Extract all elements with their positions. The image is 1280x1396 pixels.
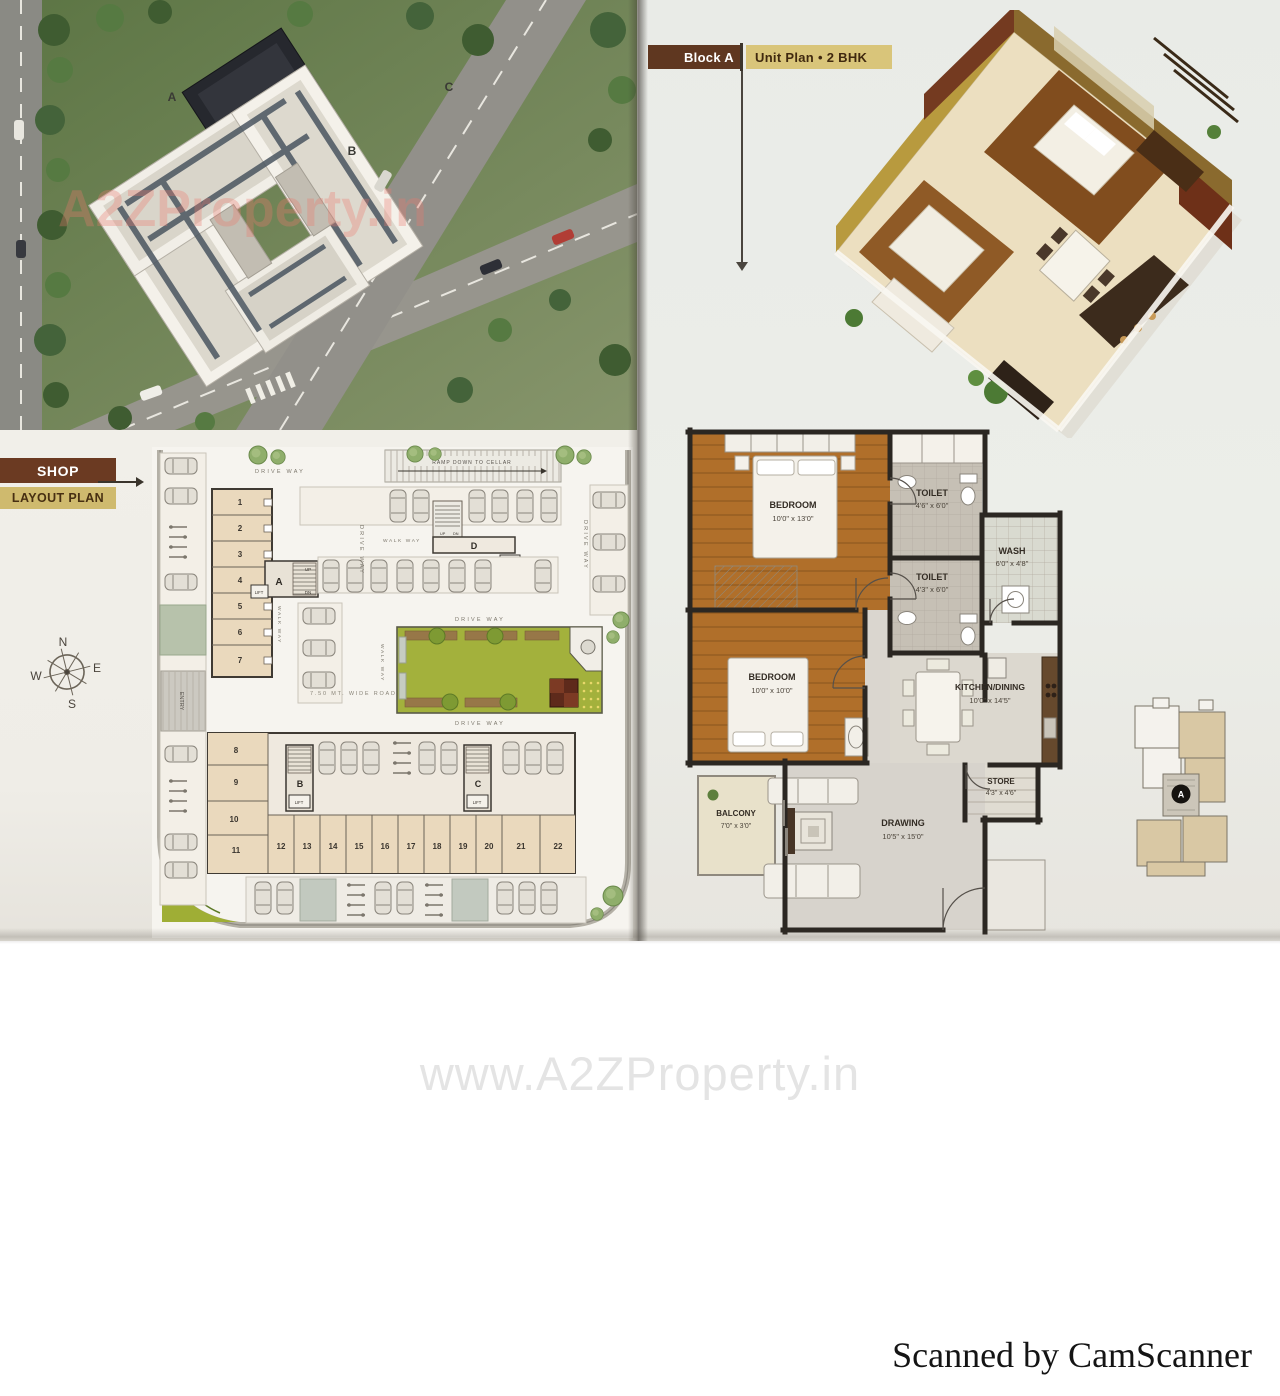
compass-w: W <box>30 669 42 683</box>
entrance-foyer <box>987 860 1045 930</box>
pointer-arrowhead-icon <box>736 262 748 271</box>
balcony-dims: 7'0" x 3'0" <box>721 823 752 830</box>
bedroom1-dims: 10'0" x 13'0" <box>772 514 813 523</box>
shop-19: 19 <box>459 842 468 851</box>
ramp-label: RAMP DOWN TO CELLAR <box>432 460 512 466</box>
layout-plan-label: LAYOUT PLAN <box>12 491 104 505</box>
shop-2: 2 <box>238 524 243 533</box>
drive-way-garden-top: DRIVE WAY <box>455 617 505 623</box>
block-c-lift: LIFT <box>473 800 482 805</box>
shop-21: 21 <box>517 842 526 851</box>
compass-n: N <box>59 635 68 649</box>
shop-22: 22 <box>554 842 563 851</box>
entry-ramp: ENTRY <box>161 671 205 731</box>
compass-rose: N E W S <box>25 630 109 714</box>
tv-unit <box>787 808 795 854</box>
block-a-dn: DN <box>305 590 312 595</box>
bedroom2-label: BEDROOM <box>749 672 796 682</box>
compass-e: E <box>93 661 101 675</box>
scanned-brochure-page: A B C A2ZProperty.in Block A Unit Plan •… <box>0 0 1280 1396</box>
shop-12: 12 <box>277 842 286 851</box>
toilet2-dims: 4'3" x 6'0" <box>916 585 949 594</box>
bedroom1-label: BEDROOM <box>770 500 817 510</box>
block-c-label: C <box>475 779 482 789</box>
central-garden <box>397 627 602 713</box>
shop-13: 13 <box>303 842 312 851</box>
shop-10: 10 <box>230 815 239 824</box>
block-b-lift: LIFT <box>295 800 304 805</box>
shop-15: 15 <box>355 842 364 851</box>
shop-1: 1 <box>238 498 243 507</box>
key-plan: A <box>1113 690 1247 882</box>
walk-way-vertical-2: WALK WAY <box>379 644 385 682</box>
shop-5: 5 <box>238 602 243 611</box>
south-shops-slab: 8 9 10 11 12 13 14 15 16 17 18 19 20 21 … <box>208 733 575 873</box>
scan-edge-shadow <box>0 928 1280 944</box>
compass-s: S <box>68 697 76 711</box>
balcony-label: BALCONY <box>716 809 756 818</box>
walk-way-vertical-1: WALK WAY <box>276 606 282 644</box>
block-a-header: Block A <box>648 45 741 69</box>
shop-4: 4 <box>238 576 243 585</box>
shop-18: 18 <box>433 842 442 851</box>
drawing-label: DRAWING <box>881 818 925 828</box>
block-d-dn: DN <box>453 532 459 536</box>
pointer-line <box>741 71 743 263</box>
block-a-up: UP <box>305 567 311 572</box>
building-label-a: A <box>168 90 177 104</box>
key-plan-block-label: A <box>1178 790 1185 800</box>
drive-way-inner: DRIVE WAY <box>358 525 364 575</box>
store-dims: 4'3" x 4'6" <box>986 790 1017 797</box>
building-label-b: B <box>348 144 357 158</box>
toilet2-label: TOILET <box>916 572 948 582</box>
sofa-top <box>768 778 858 804</box>
wide-road-label: 7.50 MT. WIDE ROAD <box>310 691 397 697</box>
site-watermark: www.A2ZProperty.in <box>0 1046 1280 1101</box>
drive-way-east: DRIVE WAY <box>582 520 588 570</box>
building-label-c: C <box>445 80 454 94</box>
block-d-label: D <box>471 541 478 551</box>
shop-16: 16 <box>381 842 390 851</box>
page-fold-shadow <box>628 0 648 941</box>
kitchen-dims: 10'0" x 14'5" <box>969 696 1010 705</box>
dining-table <box>916 672 960 742</box>
shop-layout-plan: ENTRY 1 2 3 4 5 6 7 <box>150 445 635 940</box>
store-label: STORE <box>987 777 1015 786</box>
toilet1-label: TOILET <box>916 488 948 498</box>
shop-arrow-line <box>98 481 138 483</box>
shop-14: 14 <box>329 842 338 851</box>
wash-dims: 6'0" x 4'8" <box>996 559 1029 568</box>
wash-label: WASH <box>999 546 1026 556</box>
header-divider <box>740 43 743 71</box>
shop-3: 3 <box>238 550 243 559</box>
south-parking-row <box>246 877 586 923</box>
shop-20: 20 <box>485 842 494 851</box>
shop-arrowhead-icon <box>136 477 144 487</box>
drawing-dims: 10'5" x 15'0" <box>882 832 923 841</box>
shop-8: 8 <box>234 746 239 755</box>
drive-way-garden-bottom: DRIVE WAY <box>455 721 505 727</box>
rug-hatched <box>715 566 797 608</box>
camscanner-footer: Scanned by CamScanner <box>892 1334 1252 1376</box>
shop-title-band: SHOP <box>0 458 116 483</box>
shop-7: 7 <box>238 656 243 665</box>
kitchen-label: KITCHEN/DINING <box>955 682 1025 692</box>
drive-way-top: DRIVE WAY <box>255 469 305 475</box>
washing-machine <box>1002 586 1029 613</box>
entry-label: ENTRY <box>178 692 184 711</box>
layout-plan-band: LAYOUT PLAN <box>0 487 116 509</box>
block-a-label: A <box>275 577 282 588</box>
block-a-lift: LIFT <box>255 590 264 595</box>
block-a-header-label: Block A <box>684 50 734 65</box>
walk-way-horizontal: WALK WAY <box>383 538 421 544</box>
block-d-up: UP <box>440 532 446 536</box>
photo-watermark: A2ZProperty.in <box>58 180 427 238</box>
block-b-label: B <box>297 779 304 789</box>
sofa-bottom <box>764 864 860 898</box>
bedroom2-dims: 10'0" x 10'0" <box>751 686 792 695</box>
shop-6: 6 <box>238 628 243 637</box>
balcony-plant <box>708 790 719 801</box>
hedge <box>160 605 206 655</box>
shop-17: 17 <box>407 842 416 851</box>
shop-11: 11 <box>232 846 241 855</box>
shop-9: 9 <box>234 778 239 787</box>
block-b-core: B LIFT <box>286 745 313 811</box>
kitchen-counter <box>1042 657 1058 763</box>
isometric-unit-render <box>824 10 1248 438</box>
floor-plan-2bhk: BEDROOM 10'0" x 13'0" TOILET 4'6" x 6'0"… <box>660 418 1105 938</box>
toilet1-dims: 4'6" x 6'0" <box>916 501 949 510</box>
shop-title-label: SHOP <box>37 463 79 479</box>
aerial-render-photo: A B C A2ZProperty.in <box>0 0 637 430</box>
block-c-core: C LIFT <box>464 745 491 811</box>
